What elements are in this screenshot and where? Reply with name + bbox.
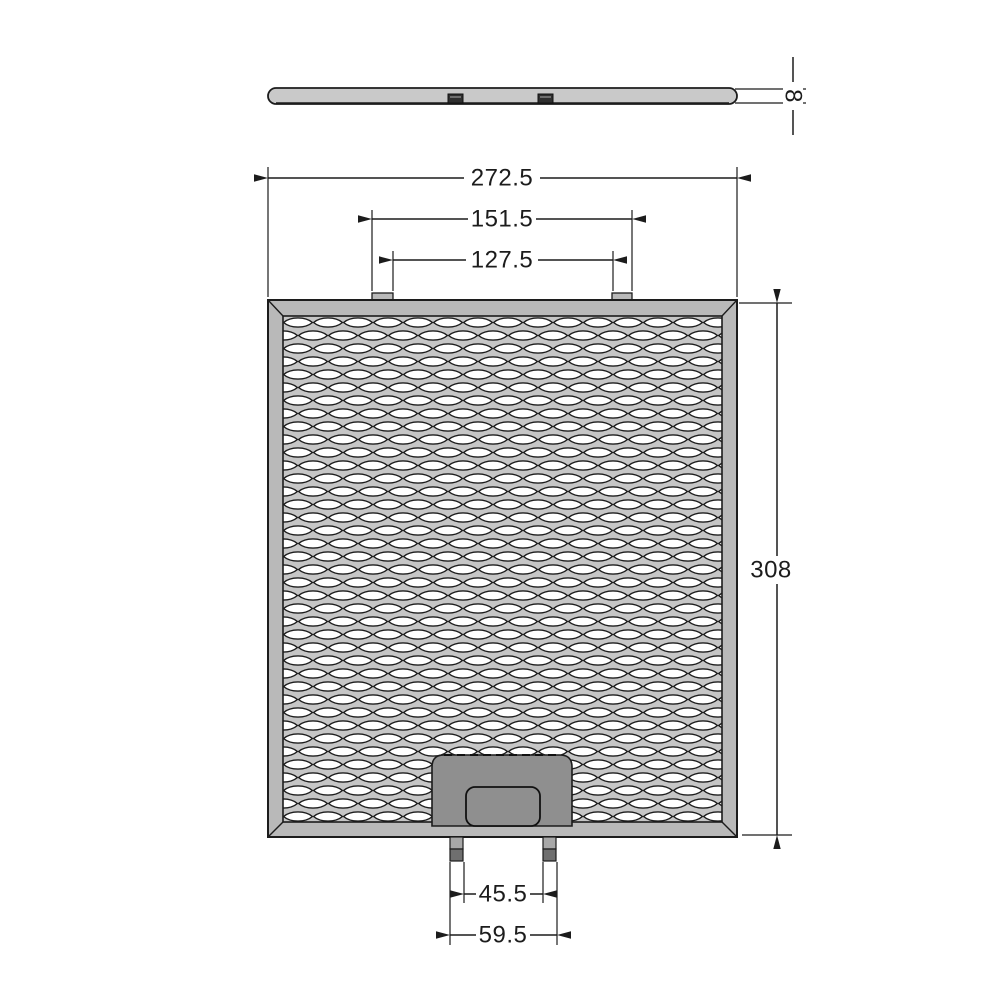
dim-label-overall-height: 308 — [750, 557, 792, 584]
dim-label-overall-width: 272.5 — [471, 165, 534, 192]
dim-label-pin-outer-spacing: 59.5 — [479, 922, 528, 949]
latch-clip-top-view-right — [538, 94, 553, 103]
dim-label-tab-inner-spacing: 127.5 — [471, 247, 534, 274]
drawing-page: 8 272.5 — [0, 0, 1000, 1000]
spring-pin-left — [450, 837, 463, 861]
dim-label-pin-inner-spacing: 45.5 — [479, 881, 528, 908]
spring-pin-right — [543, 837, 556, 861]
dim-pin-inner-spacing: 45.5 — [464, 862, 543, 908]
latch-assembly — [432, 755, 572, 826]
technical-drawing-canvas: 8 272.5 — [0, 0, 1000, 1000]
dim-thickness: 8 — [735, 57, 807, 135]
filter-edge-bar — [268, 88, 737, 104]
dim-label-tab-outer-spacing: 151.5 — [471, 206, 534, 233]
dim-tab-inner-spacing: 127.5 — [393, 247, 613, 292]
mesh-panel — [283, 316, 722, 822]
latch-clip-top-view-left — [448, 94, 463, 103]
dim-overall-height: 308 — [739, 303, 799, 835]
front-view — [268, 293, 737, 861]
latch-handle — [466, 787, 540, 826]
dim-label-thickness: 8 — [780, 89, 807, 103]
side-profile-view: 8 — [268, 57, 807, 135]
